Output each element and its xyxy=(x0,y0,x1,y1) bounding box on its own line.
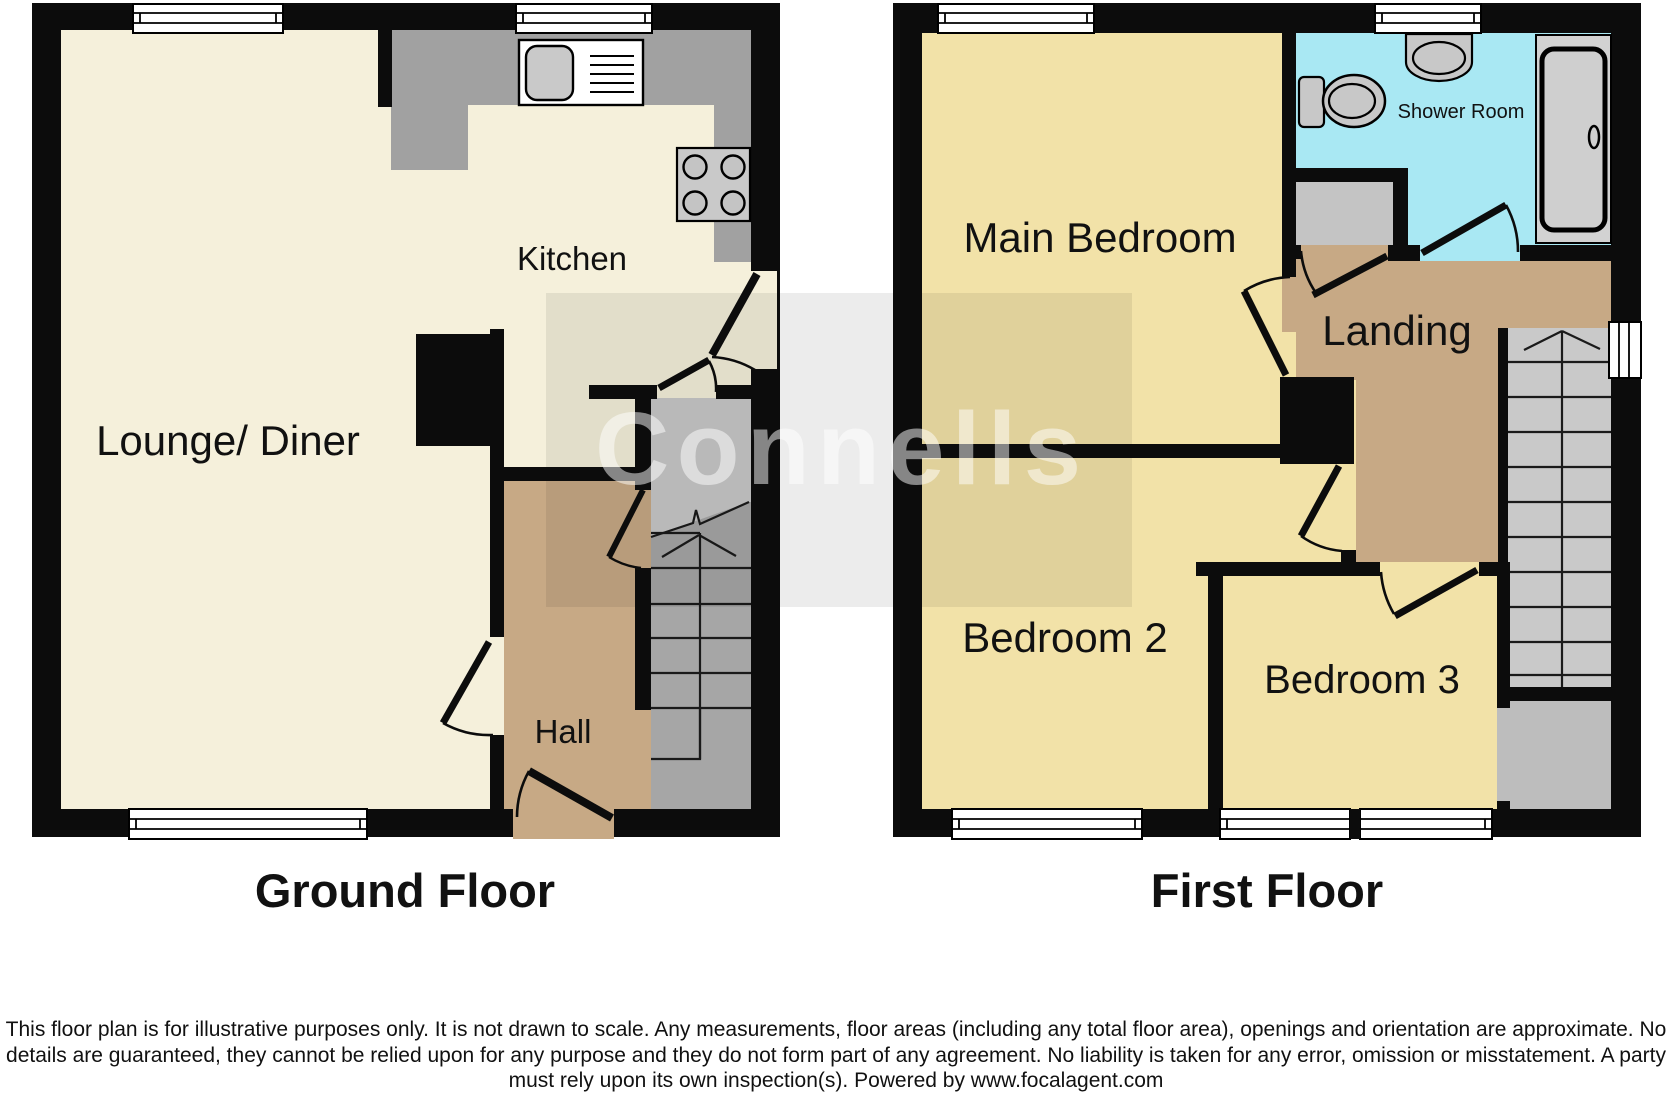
svg-text:must rely upon its own inspect: must rely upon its own inspection(s). Po… xyxy=(509,1069,1164,1092)
svg-text:Kitchen: Kitchen xyxy=(517,240,627,277)
svg-text:Lounge/ Diner: Lounge/ Diner xyxy=(96,417,360,464)
svg-text:Connells: Connells xyxy=(595,391,1081,506)
svg-text:First Floor: First Floor xyxy=(1151,864,1383,917)
svg-text:Hall: Hall xyxy=(535,713,592,750)
svg-text:details are guaranteed, they c: details are guaranteed, they cannot be r… xyxy=(6,1044,1666,1067)
svg-text:Ground Floor: Ground Floor xyxy=(255,864,555,917)
svg-text:Landing: Landing xyxy=(1322,307,1471,354)
svg-text:This floor plan is for illustr: This floor plan is for illustrative purp… xyxy=(6,1018,1667,1041)
svg-text:Bedroom 2: Bedroom 2 xyxy=(962,614,1167,661)
svg-text:Main Bedroom: Main Bedroom xyxy=(963,214,1236,261)
svg-text:Shower Room: Shower Room xyxy=(1398,101,1525,123)
svg-text:Bedroom 3: Bedroom 3 xyxy=(1264,658,1460,702)
